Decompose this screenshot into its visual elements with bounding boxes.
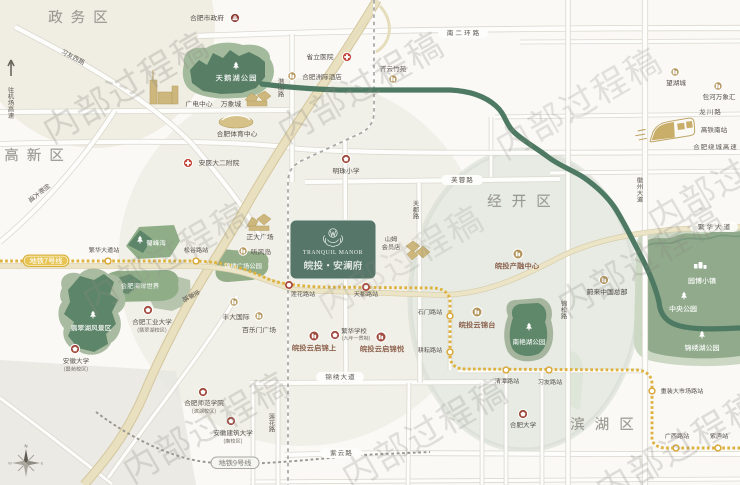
svg-text:N: N <box>24 444 27 449</box>
svg-text:E: E <box>41 461 44 466</box>
svg-text:TRANQUIL MANOR: TRANQUIL MANOR <box>303 250 363 256</box>
svg-text:W: W <box>8 461 12 466</box>
